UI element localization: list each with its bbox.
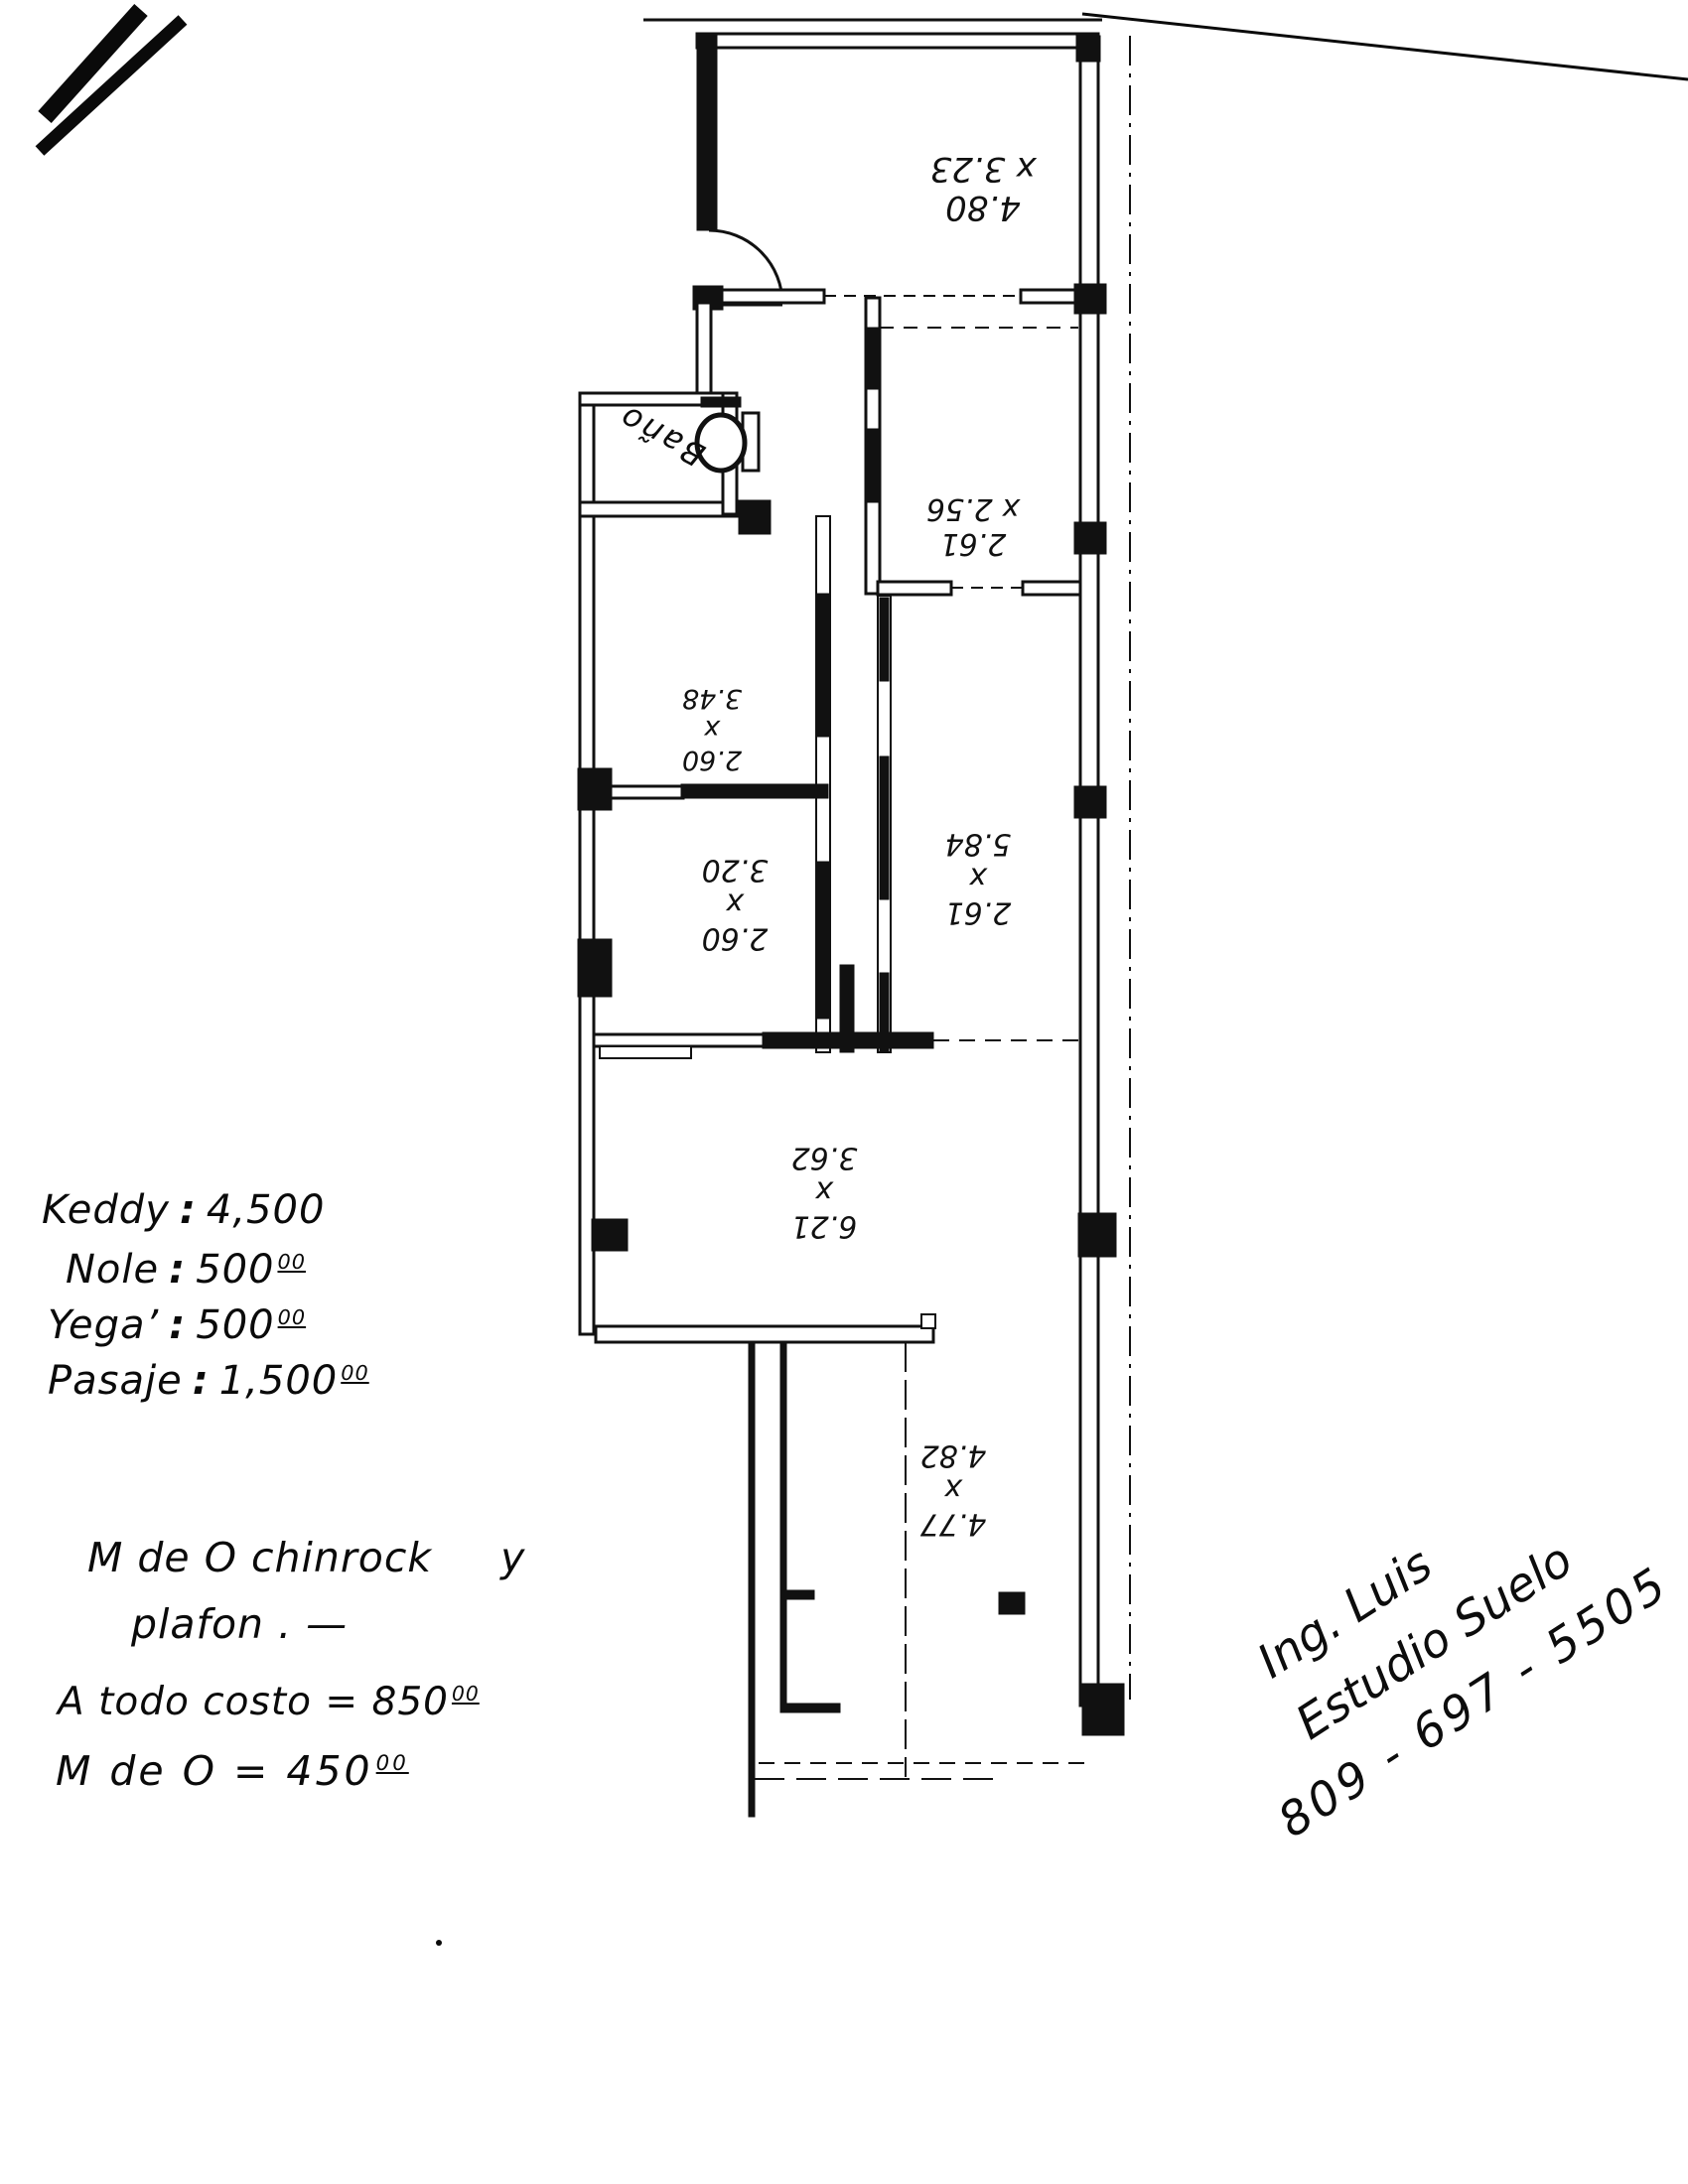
colon: : [159,1302,196,1348]
amount-superscript: 00 [341,1361,368,1385]
wall-thick [816,594,830,737]
dimension-line: 2.60 [680,920,789,955]
payment-note-line: Yega’:50000 [48,1302,306,1348]
room-dimensions-upper-right: 2.61 x 2.56 [909,491,1038,560]
payment-note-line: Pasaje:1,50000 [48,1358,369,1404]
note-text: A todo costo = [58,1680,372,1724]
dimension-line: x [899,1472,1008,1507]
wall-thick [681,784,828,798]
scan-edge-line [1082,14,1688,79]
amount: 500 [196,1247,274,1293]
column [1074,786,1106,818]
wall-segment [697,303,711,394]
dimension-line: 4.77 [899,1506,1008,1541]
wall-thick [780,1704,840,1712]
colon: : [183,1358,219,1404]
payee-name: Pasaje [48,1358,183,1404]
work-note-line: M de O chinrock y [87,1534,525,1581]
amount: 850 [372,1680,449,1724]
column [1074,522,1106,554]
column [1082,1684,1124,1735]
wall-segment [1023,582,1080,595]
dimension-line: x [765,1174,884,1209]
wall-thick [868,328,878,389]
room-dimensions-bottom: 4.77 x 4.82 [899,1437,1008,1541]
wall-thick [701,397,741,407]
wall-segment [1021,290,1082,303]
wall-segment [600,1046,691,1058]
wall-segment [921,1314,935,1328]
amount-superscript: 00 [277,1250,305,1274]
dimension-line: 3.48 [657,683,767,714]
wall-thick [880,756,889,899]
payee-name: Nole [66,1247,159,1293]
amount: 1,500 [219,1358,339,1404]
dimension-line: 2.61 [909,526,1038,561]
note-text: M de O = [56,1747,286,1795]
wall-thick [697,34,717,230]
note-suffix: y [500,1534,525,1581]
dimension-line: 6.21 [765,1208,884,1243]
amount: 4,500 [207,1187,326,1233]
wall-thick [780,1590,814,1599]
dimension-line: x [657,714,767,745]
dimension-line: x 2.56 [909,491,1038,526]
ink-dot [436,1940,442,1946]
scanned-floor-plan-page: { "floor_plan": { "bathroom_label": "Bañ… [0,0,1688,2184]
wall-segment [594,1034,765,1046]
wall-thick [780,1342,786,1592]
room-dimensions-mid-right: 2.61 x 5.84 [923,826,1033,929]
wall-thick [816,862,830,1019]
floor-plan-drawing [0,0,1688,2184]
dimension-line: x 3.23 [874,149,1092,188]
wall-thick [868,429,878,502]
wall-thick [749,1342,755,1817]
wall-segment [709,290,824,303]
column [578,768,612,810]
work-note-line: plafon . — [131,1600,348,1648]
work-note-line: A todo costo = 85000 [58,1680,480,1724]
payee-name: Yega’ [48,1302,159,1348]
dimension-line: x [923,861,1033,895]
walls [578,20,1130,1817]
column [1076,36,1100,62]
payment-note-line: Keddy:4,500 [42,1187,325,1233]
payee-name: Keddy [42,1187,170,1233]
column [739,500,771,534]
dimension-line: 5.84 [923,826,1033,861]
dimension-line: 3.62 [765,1140,884,1174]
room-dimensions-lower-wide: 6.21 x 3.62 [765,1140,884,1243]
column [578,939,612,997]
dimension-line: 2.60 [657,745,767,775]
amount-superscript: 00 [376,1751,409,1776]
colon: : [170,1187,207,1233]
amount: 450 [286,1747,372,1795]
wall-segment [580,393,594,1334]
column [1078,1213,1116,1257]
room-dimensions-top: 4.80 x 3.23 [874,149,1092,226]
wall-segment [596,1326,933,1342]
colon: : [159,1247,196,1293]
column [999,1592,1025,1614]
wall-thick [880,598,889,681]
payment-note-line: Nole:50000 [66,1247,306,1293]
dimension-line: 4.82 [899,1437,1008,1472]
column [592,1219,628,1251]
dimension-line: x [680,887,789,921]
dimension-line: 4.80 [874,188,1092,226]
amount: 500 [196,1302,274,1348]
dimension-line: 3.20 [680,852,789,887]
note-text: M de O chinrock [87,1534,432,1581]
wall-segment [878,582,951,595]
amount-superscript: 00 [278,1305,306,1329]
wall-segment [697,34,1096,48]
room-dimensions-mid-left-1: 2.60 x 3.48 [657,683,767,775]
room-dimensions-mid-left-2: 2.60 x 3.20 [680,852,789,955]
work-note-line: M de O = 45000 [56,1747,409,1795]
column [1074,284,1106,314]
wall-thick [763,1032,933,1048]
dimension-line: 2.61 [923,894,1033,929]
wall-thick [780,1599,786,1706]
amount-superscript: 00 [452,1682,480,1706]
